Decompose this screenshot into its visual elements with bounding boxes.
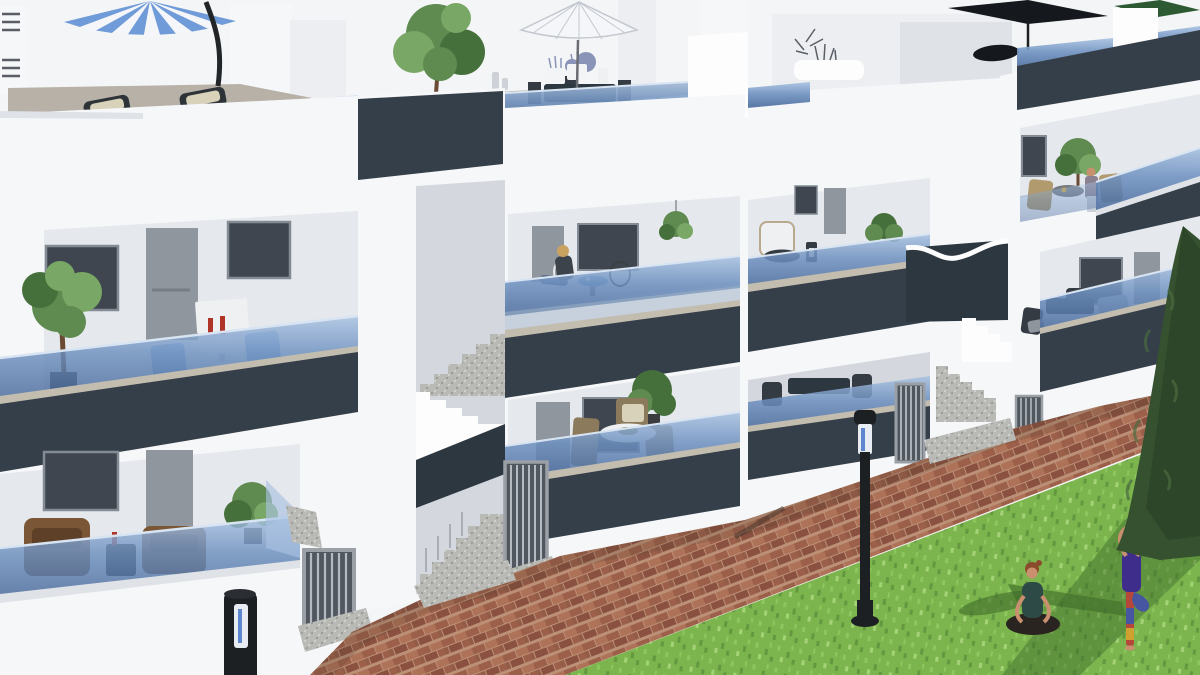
bollard-cap (224, 589, 256, 599)
window (1022, 136, 1046, 176)
window (795, 186, 817, 214)
render-canvas (0, 0, 1200, 675)
bg-wall (618, 0, 656, 94)
lamp-lens-reflection (861, 428, 865, 451)
left-block (0, 1, 373, 675)
stair-tower (358, 88, 505, 614)
window (228, 222, 290, 278)
architectural-render (0, 0, 1200, 675)
bollard-lens-reflection (238, 609, 242, 643)
door (146, 228, 198, 340)
face (1027, 568, 1038, 579)
window (44, 452, 118, 510)
torso (1022, 582, 1043, 618)
lamp-pole (860, 452, 870, 610)
vent-block (0, 6, 28, 94)
torso (1122, 552, 1141, 592)
window (578, 224, 638, 270)
legging-patch-yellow (1126, 628, 1134, 640)
bollard-lower (224, 648, 257, 675)
door (824, 188, 846, 234)
bg-planter (794, 60, 864, 80)
legging-patch-blue (1126, 608, 1134, 624)
gate-right-terrace (896, 384, 924, 462)
lamp-base-stem (857, 600, 873, 620)
path-light-bollard (224, 589, 257, 675)
lamp-cap (854, 410, 876, 425)
door (146, 450, 193, 530)
foot (1125, 646, 1135, 651)
hair-bun (1036, 560, 1042, 566)
